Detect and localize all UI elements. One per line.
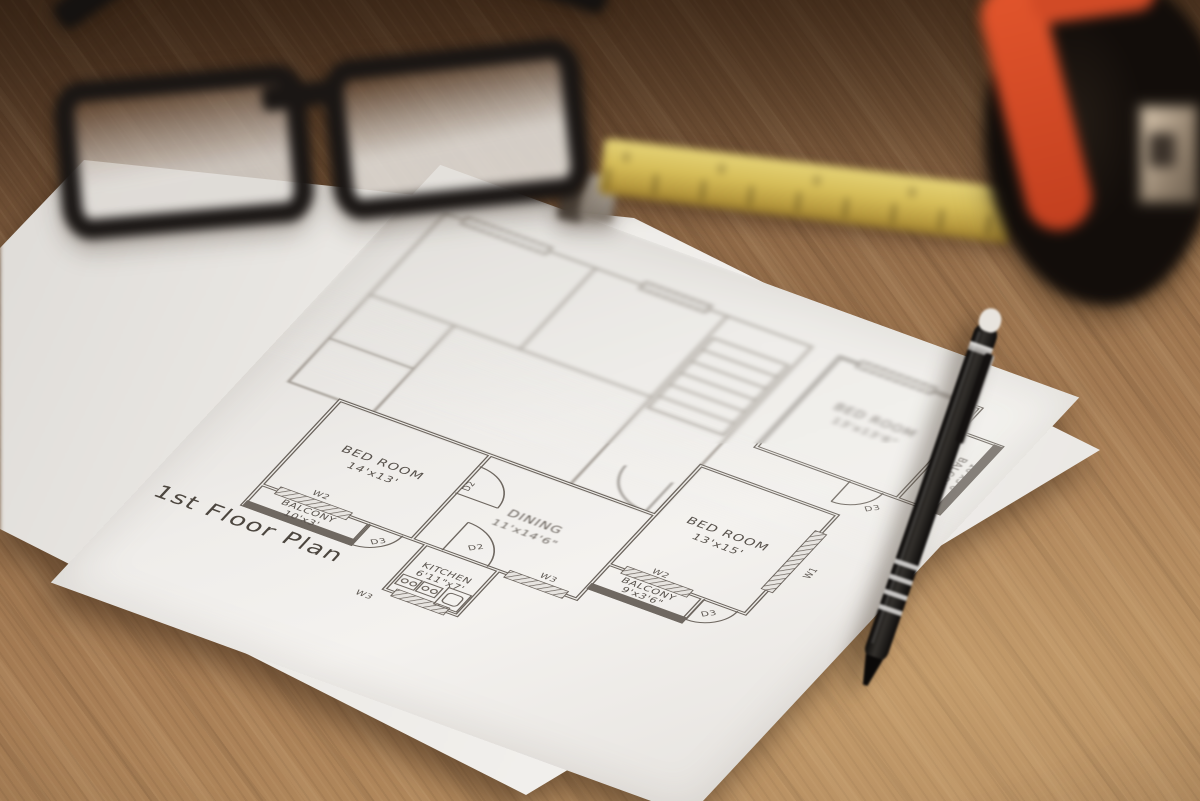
glasses-lens-right <box>320 36 593 222</box>
pen <box>760 318 1060 718</box>
marker-w3-a: W3 <box>353 589 375 601</box>
glasses-temple-right <box>457 0 611 16</box>
pen-body <box>862 320 1001 664</box>
pen-tip <box>853 653 885 689</box>
marker-d3-b: D3 <box>700 610 718 619</box>
tape-measure <box>985 0 1200 305</box>
photo-canvas: BED ROOM 14'x13' BALCONY 10'x3' KITCHEN … <box>0 0 1200 801</box>
tape-measure-belt-clip <box>1135 101 1200 207</box>
pen-sheen <box>871 331 981 644</box>
ruler-bar <box>598 138 1017 244</box>
marker-d2-b: D2 <box>467 543 485 552</box>
glasses-temple-left <box>50 0 159 32</box>
folding-ruler <box>545 135 1035 275</box>
eyeglasses <box>30 0 595 230</box>
pen-clip <box>955 352 995 444</box>
